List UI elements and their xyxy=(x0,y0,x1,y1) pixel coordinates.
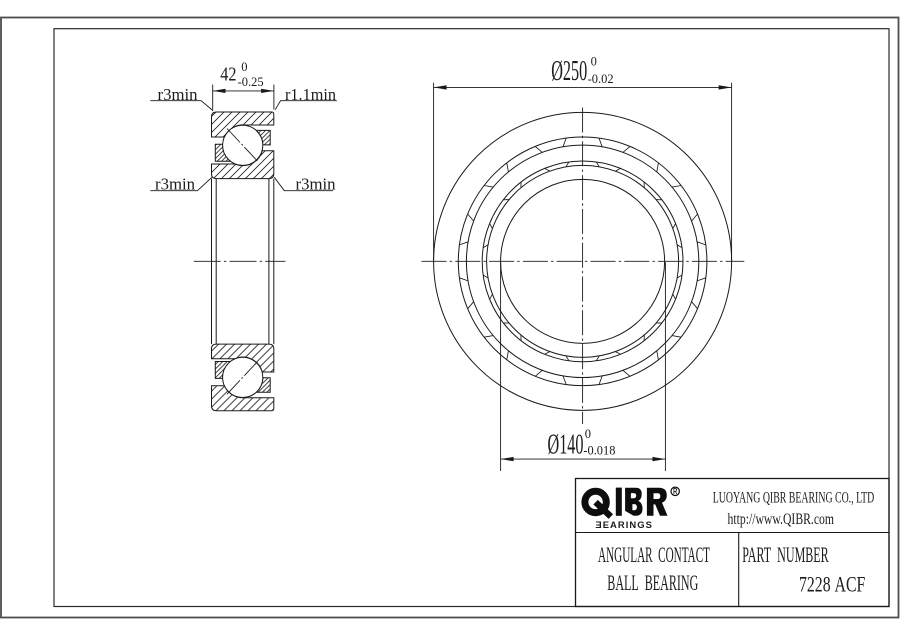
svg-text:http://www.QIBR.com: http://www.QIBR.com xyxy=(728,511,835,528)
svg-text:BALL BEARING: BALL BEARING xyxy=(607,570,698,595)
svg-text:0: 0 xyxy=(591,54,597,68)
svg-text:R: R xyxy=(673,487,677,496)
svg-text:PART NUMBER: PART NUMBER xyxy=(742,542,829,567)
svg-text:r3min: r3min xyxy=(155,175,195,194)
svg-text:-0.018: -0.018 xyxy=(583,444,615,458)
svg-text:ƎEARINGS: ƎEARINGS xyxy=(595,520,653,530)
svg-text:-0.02: -0.02 xyxy=(588,72,614,86)
svg-text:LUOYANG QIBR BEARING CO., LTD: LUOYANG QIBR BEARING CO., LTD xyxy=(713,490,875,507)
svg-text:-0.25: -0.25 xyxy=(238,75,264,89)
svg-text:Ø140: Ø140 xyxy=(548,429,584,460)
svg-text:r3min: r3min xyxy=(296,175,336,194)
svg-text:42: 42 xyxy=(220,63,236,85)
svg-text:Ø250: Ø250 xyxy=(551,56,587,87)
svg-text:r3min: r3min xyxy=(158,85,198,104)
svg-text:0: 0 xyxy=(241,60,247,74)
svg-text:7228 ACF: 7228 ACF xyxy=(799,571,865,596)
svg-text:r1.1min: r1.1min xyxy=(285,85,336,104)
svg-text:0: 0 xyxy=(585,427,591,441)
svg-text:ANGULAR CONTACT: ANGULAR CONTACT xyxy=(598,542,710,567)
